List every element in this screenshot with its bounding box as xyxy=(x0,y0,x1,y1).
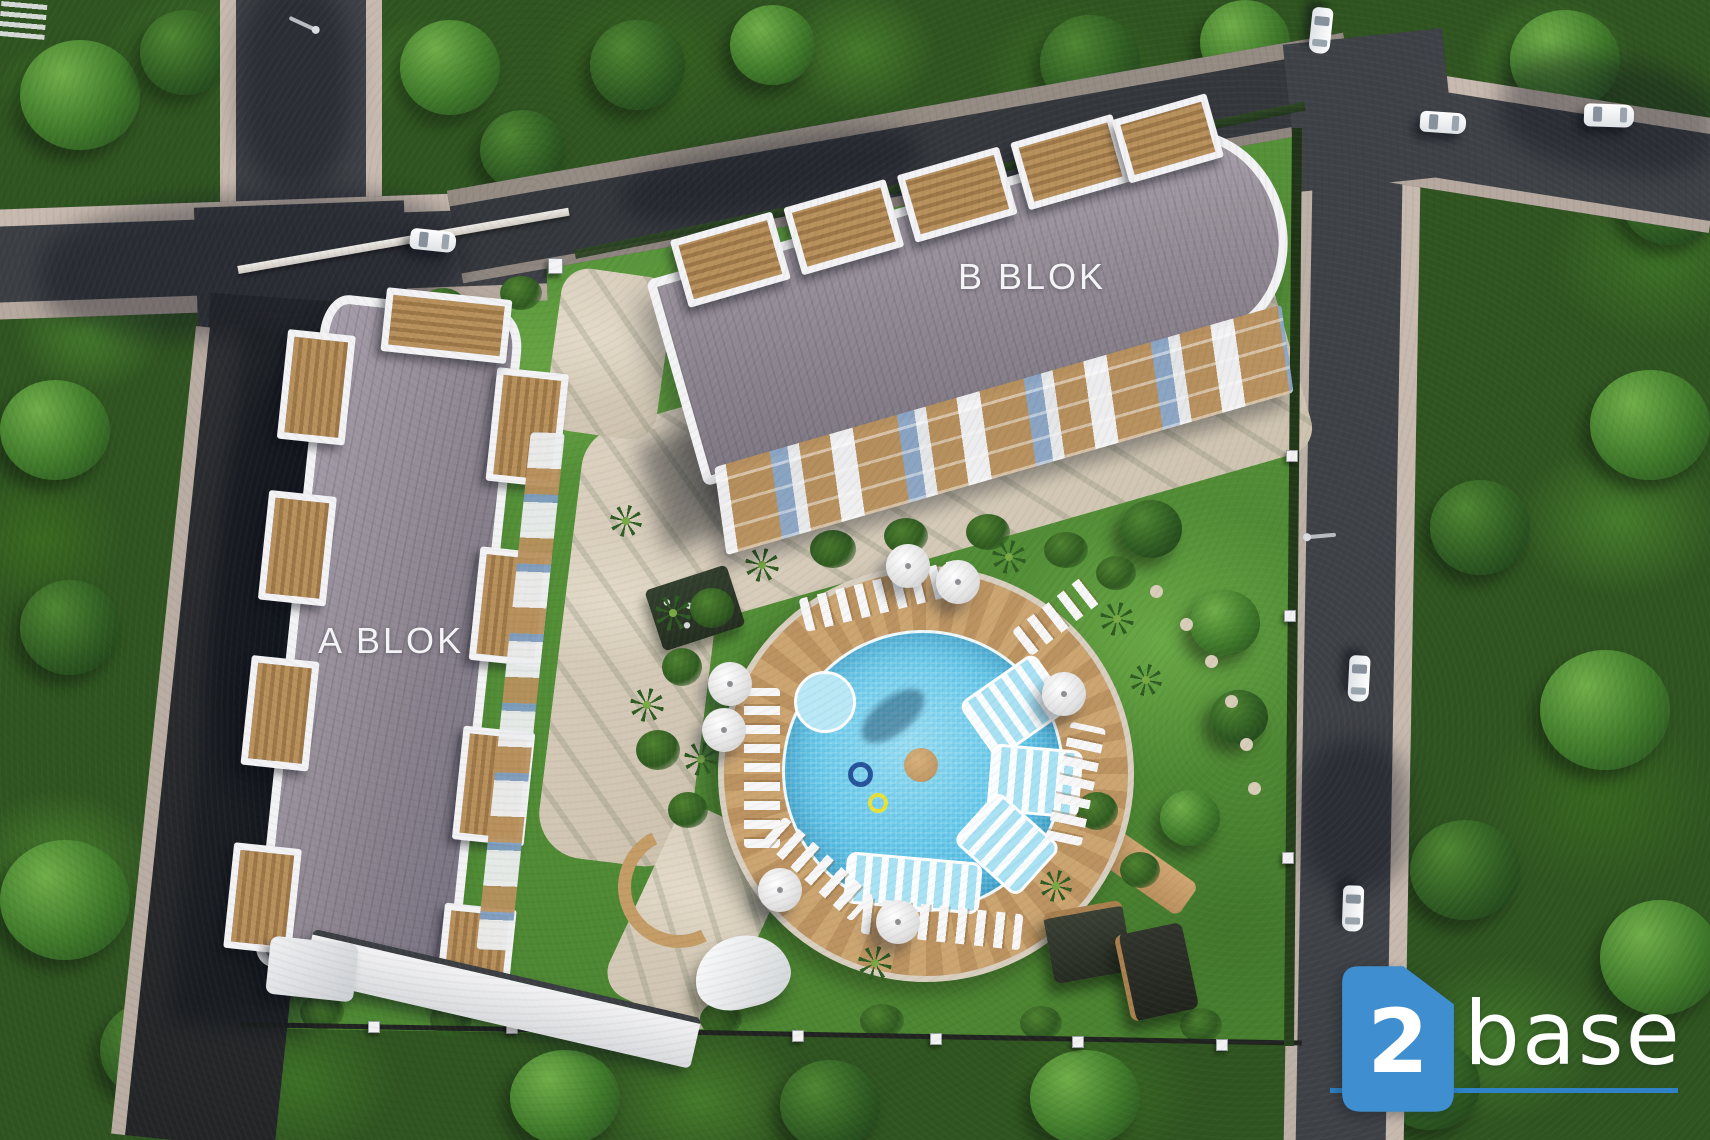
tree xyxy=(1210,690,1268,744)
palm-tree xyxy=(992,540,1026,574)
pool-island xyxy=(904,748,938,782)
umbrella xyxy=(886,544,930,588)
tree xyxy=(1590,370,1710,480)
gate-pillar xyxy=(548,258,563,274)
palm-tree xyxy=(1100,602,1134,636)
fence-post xyxy=(1284,610,1296,622)
umbrella xyxy=(758,868,802,912)
tree-shadow xyxy=(240,0,350,190)
tree xyxy=(20,580,120,675)
bush xyxy=(1096,556,1136,590)
white-car xyxy=(1342,885,1365,932)
building-a-label: A BLOK xyxy=(318,620,464,662)
palm-tree xyxy=(1130,664,1162,696)
balcony xyxy=(277,329,356,446)
bush xyxy=(662,648,702,686)
logo-name: base xyxy=(1464,982,1682,1085)
tree xyxy=(1030,1050,1140,1140)
white-car xyxy=(1419,110,1466,134)
bush xyxy=(1044,532,1088,568)
fence-post xyxy=(1282,852,1294,864)
bush xyxy=(1120,852,1160,888)
balcony xyxy=(258,490,337,607)
tree xyxy=(780,1060,880,1140)
tree xyxy=(730,5,815,85)
palm-tree xyxy=(610,505,642,537)
tree xyxy=(1540,650,1670,770)
fence-post xyxy=(1216,1039,1228,1051)
umbrella xyxy=(876,900,920,944)
palm-tree xyxy=(858,946,892,980)
tree xyxy=(510,1050,620,1140)
logo-number: 2 xyxy=(1340,968,1456,1114)
fence-post xyxy=(1286,450,1298,462)
balcony xyxy=(240,655,319,772)
tree xyxy=(590,20,685,110)
pool-float xyxy=(848,762,873,787)
tree xyxy=(1160,790,1220,846)
palm-tree xyxy=(1040,870,1072,902)
tree xyxy=(1190,590,1260,656)
stepping-stone xyxy=(1225,695,1238,708)
umbrella xyxy=(702,708,746,752)
fence-post xyxy=(1072,1036,1084,1048)
fence-post xyxy=(368,1021,380,1033)
carport xyxy=(265,936,359,1003)
white-suv xyxy=(1584,103,1635,128)
tree xyxy=(140,10,230,95)
intersection-east xyxy=(1283,28,1458,192)
developer-logo: 2 base xyxy=(1316,958,1710,1136)
balcony xyxy=(380,287,512,364)
fence-post xyxy=(792,1030,804,1042)
pool-float xyxy=(868,793,888,813)
tree-shadow xyxy=(1300,740,1410,890)
palm-tree xyxy=(655,595,691,631)
sun-loungers xyxy=(744,688,780,848)
aerial-site-plan: A BLOK B BLOK 2 base xyxy=(0,0,1710,1140)
stepping-stone xyxy=(1150,585,1163,598)
umbrella xyxy=(1042,672,1086,716)
tree xyxy=(1430,480,1530,575)
stepping-stone xyxy=(1248,782,1261,795)
bush xyxy=(636,730,680,770)
tree xyxy=(400,20,500,115)
fence-post xyxy=(930,1033,942,1045)
crosswalk xyxy=(0,0,48,40)
tree xyxy=(1410,820,1520,920)
building-b-label: B BLOK xyxy=(958,256,1106,298)
kids-pool xyxy=(794,671,856,733)
bush xyxy=(1180,1008,1222,1042)
bush xyxy=(690,588,734,628)
white-car xyxy=(1347,655,1370,702)
stepping-stone xyxy=(1205,655,1218,668)
tree xyxy=(20,40,140,150)
umbrella xyxy=(936,560,980,604)
palm-tree xyxy=(630,688,664,722)
stepping-stone xyxy=(1180,618,1193,631)
stepping-stone xyxy=(1240,738,1253,751)
tree xyxy=(0,840,130,960)
tree xyxy=(0,380,110,480)
umbrella xyxy=(708,662,752,706)
tree xyxy=(1120,500,1182,558)
bush xyxy=(668,792,708,828)
